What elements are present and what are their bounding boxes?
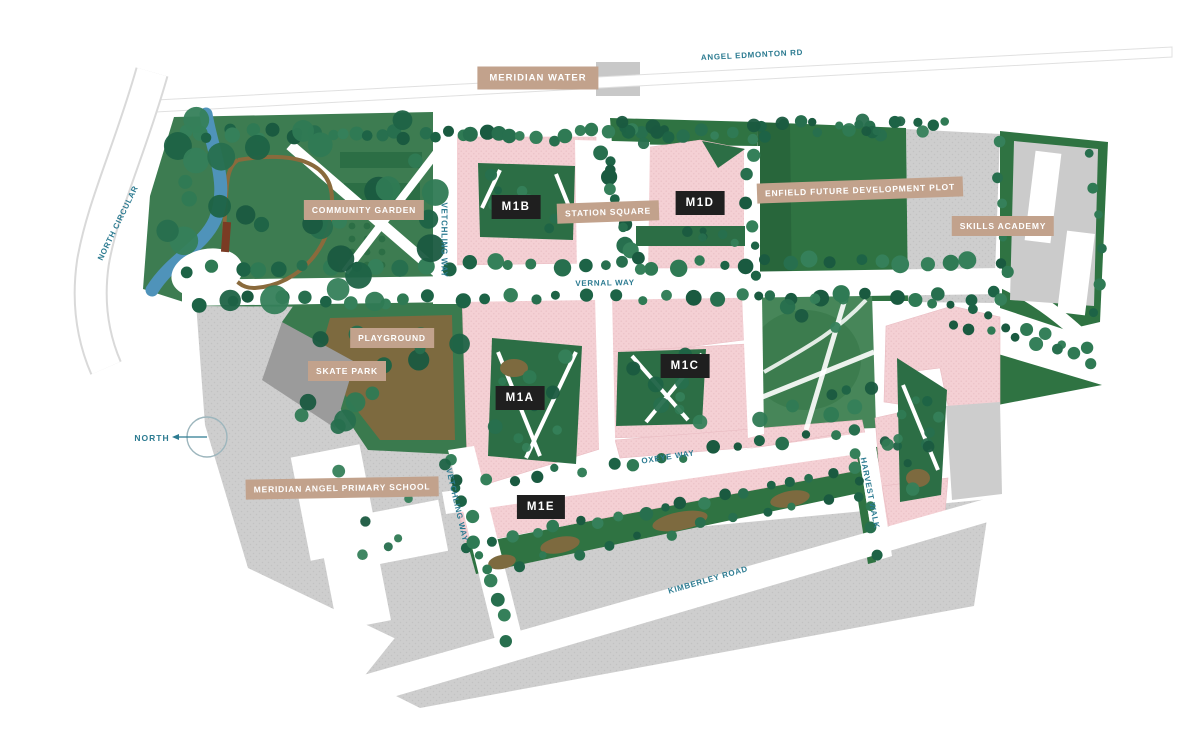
area-label-meridian-water: MERIDIAN WATER <box>477 67 598 90</box>
road-label-vernal-way: VERNAL WAY <box>575 278 635 288</box>
plot-marker-m1b[interactable]: M1B <box>492 195 541 219</box>
site-plan-map <box>0 0 1200 733</box>
area-label-skate-park: SKATE PARK <box>308 361 386 381</box>
area-label-playground: PLAYGROUND <box>350 328 434 348</box>
site-plan: MERIDIAN WATER COMMUNITY GARDEN STATION … <box>0 0 1200 733</box>
angel-edmonton-road <box>156 47 1172 112</box>
east-complex-gray-building <box>946 402 1002 500</box>
area-label-station-square: STATION SQUARE <box>557 200 660 224</box>
area-label-primary-school: MERIDIAN ANGEL PRIMARY SCHOOL <box>245 476 438 499</box>
compass-north-label: NORTH <box>134 433 169 443</box>
plot-marker-m1e[interactable]: M1E <box>517 495 565 519</box>
plot-marker-m1d[interactable]: M1D <box>676 191 725 215</box>
area-label-skills-academy: SKILLS ACADEMY <box>952 216 1054 236</box>
area-label-community-garden: COMMUNITY GARDEN <box>304 200 424 220</box>
road-label-vetchling-way-north: VETCHLING WAY <box>440 202 449 277</box>
plot-marker-m1c[interactable]: M1C <box>661 354 710 378</box>
compass-arrow-head <box>172 434 179 440</box>
plot-marker-m1a[interactable]: M1A <box>496 386 545 410</box>
